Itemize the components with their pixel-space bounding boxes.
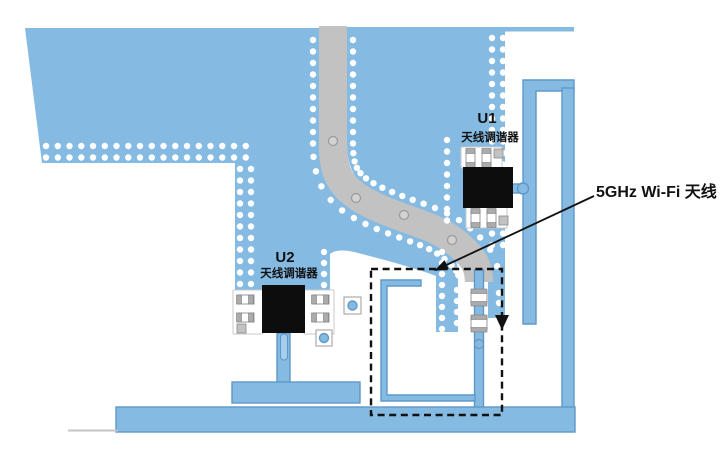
test-point bbox=[344, 297, 361, 314]
via bbox=[137, 154, 143, 160]
bottom-ground-bar bbox=[116, 407, 575, 432]
via bbox=[489, 81, 495, 87]
via bbox=[160, 154, 166, 160]
via bbox=[310, 106, 316, 112]
ground-pour-top-left bbox=[25, 28, 319, 163]
via bbox=[318, 183, 324, 189]
via bbox=[500, 81, 506, 87]
wifi-antenna-callout-label: 5GHz Wi-Fi 天线 bbox=[596, 182, 717, 201]
via bbox=[310, 83, 316, 89]
passive-component bbox=[487, 209, 496, 228]
via bbox=[321, 282, 327, 288]
via bbox=[439, 249, 445, 255]
via bbox=[489, 69, 495, 75]
via bbox=[248, 258, 254, 264]
u2-feed-inner-trace bbox=[281, 334, 288, 360]
via bbox=[407, 238, 413, 244]
via bbox=[184, 143, 190, 149]
via bbox=[310, 37, 316, 43]
via bbox=[196, 154, 202, 160]
via bbox=[489, 230, 495, 236]
via bbox=[350, 150, 356, 156]
via bbox=[489, 58, 495, 64]
pcb-layout-figure: U1 天线调谐器 U2 天线调谐器 5GHz Wi-Fi 天线 bbox=[0, 0, 720, 462]
via bbox=[439, 282, 445, 288]
via bbox=[207, 154, 213, 160]
via bbox=[231, 143, 237, 149]
via bbox=[444, 206, 450, 212]
feed-via bbox=[475, 340, 484, 349]
via bbox=[125, 143, 131, 149]
via bbox=[350, 48, 356, 54]
u2-function-label: 天线调谐器 bbox=[260, 266, 318, 280]
via bbox=[350, 140, 356, 146]
via bbox=[310, 94, 316, 100]
via bbox=[350, 60, 356, 66]
via bbox=[248, 235, 254, 241]
via bbox=[310, 60, 316, 66]
via bbox=[78, 154, 84, 160]
via bbox=[237, 223, 243, 229]
via bbox=[477, 234, 483, 240]
via bbox=[90, 154, 96, 160]
via bbox=[439, 326, 445, 332]
u1-stub-end bbox=[518, 183, 529, 194]
via bbox=[237, 177, 243, 183]
solder-pad bbox=[499, 216, 508, 225]
via bbox=[444, 137, 450, 143]
via bbox=[55, 143, 61, 149]
via bbox=[43, 154, 49, 160]
u1-antenna-tuner bbox=[461, 147, 513, 228]
passive-component bbox=[312, 295, 330, 304]
trace-via bbox=[352, 194, 361, 203]
via bbox=[237, 235, 243, 241]
via bbox=[172, 143, 178, 149]
via bbox=[237, 269, 243, 275]
via bbox=[432, 205, 438, 211]
via bbox=[500, 58, 506, 64]
via bbox=[426, 246, 432, 252]
via bbox=[90, 143, 96, 149]
via bbox=[385, 230, 391, 236]
via bbox=[350, 129, 356, 135]
via bbox=[357, 170, 363, 176]
via bbox=[160, 143, 166, 149]
via bbox=[310, 140, 316, 146]
pcb-layout-diagram: U1 天线调谐器 U2 天线调谐器 5GHz Wi-Fi 天线 bbox=[0, 0, 720, 462]
u2-antenna-bar bbox=[232, 382, 360, 403]
via bbox=[149, 143, 155, 149]
via bbox=[370, 180, 376, 186]
passive-component bbox=[466, 149, 475, 168]
via bbox=[350, 94, 356, 100]
via bbox=[313, 168, 319, 174]
via bbox=[455, 272, 461, 278]
via bbox=[410, 197, 416, 203]
via bbox=[363, 175, 369, 181]
passive-component bbox=[471, 315, 487, 332]
via bbox=[362, 221, 368, 227]
passive-component bbox=[471, 289, 487, 306]
via bbox=[321, 271, 327, 277]
via bbox=[137, 143, 143, 149]
via bbox=[248, 223, 254, 229]
via bbox=[248, 281, 254, 287]
via bbox=[454, 320, 460, 326]
trace-via bbox=[448, 236, 457, 245]
via bbox=[489, 35, 495, 41]
via bbox=[248, 166, 254, 172]
via bbox=[43, 143, 49, 149]
via bbox=[78, 143, 84, 149]
via bbox=[489, 92, 495, 98]
passive-component bbox=[237, 313, 255, 322]
via bbox=[350, 106, 356, 112]
via bbox=[500, 35, 506, 41]
via bbox=[328, 197, 334, 203]
via bbox=[439, 271, 445, 277]
via bbox=[444, 160, 450, 166]
ground-strip-top-right bbox=[505, 27, 574, 32]
u2-ref-label: U2 bbox=[275, 249, 294, 266]
passive-component bbox=[482, 149, 491, 168]
passive-component bbox=[471, 209, 480, 228]
via bbox=[420, 201, 426, 207]
via bbox=[66, 154, 72, 160]
via bbox=[321, 260, 327, 266]
via bbox=[66, 143, 72, 149]
via bbox=[500, 69, 506, 75]
via bbox=[351, 158, 357, 164]
u1-ic-body bbox=[463, 167, 513, 208]
via bbox=[489, 46, 495, 52]
via bbox=[444, 194, 450, 200]
via bbox=[456, 217, 462, 223]
via bbox=[196, 143, 202, 149]
via bbox=[243, 143, 249, 149]
via bbox=[172, 154, 178, 160]
via bbox=[417, 242, 423, 248]
via bbox=[248, 200, 254, 206]
trace-via bbox=[400, 211, 409, 220]
trace-via bbox=[329, 137, 338, 146]
via bbox=[350, 83, 356, 89]
via bbox=[248, 177, 254, 183]
via bbox=[113, 143, 119, 149]
via bbox=[500, 104, 506, 110]
via bbox=[439, 293, 445, 299]
via bbox=[243, 154, 249, 160]
passive-component bbox=[312, 313, 330, 322]
via bbox=[396, 234, 402, 240]
via bbox=[248, 189, 254, 195]
via bbox=[500, 242, 506, 248]
via bbox=[500, 230, 506, 236]
via bbox=[350, 117, 356, 123]
via bbox=[219, 154, 225, 160]
via bbox=[55, 154, 61, 160]
via bbox=[454, 309, 460, 315]
via bbox=[310, 48, 316, 54]
via bbox=[454, 287, 460, 293]
via bbox=[219, 143, 225, 149]
via bbox=[321, 249, 327, 255]
via bbox=[350, 37, 356, 43]
via bbox=[444, 171, 450, 177]
via bbox=[113, 154, 119, 160]
via bbox=[237, 281, 243, 287]
via bbox=[237, 212, 243, 218]
via bbox=[207, 143, 213, 149]
via bbox=[439, 304, 445, 310]
u2-antenna-tuner bbox=[233, 285, 361, 346]
via bbox=[310, 154, 316, 160]
solder-pad bbox=[494, 149, 503, 158]
feed-point-arrowhead bbox=[495, 315, 509, 330]
via bbox=[248, 212, 254, 218]
via bbox=[500, 46, 506, 52]
via bbox=[379, 185, 385, 191]
via bbox=[354, 165, 360, 171]
via bbox=[439, 315, 445, 321]
via bbox=[444, 148, 450, 154]
u2-ic-body bbox=[262, 285, 305, 333]
via bbox=[310, 117, 316, 123]
via bbox=[351, 215, 357, 221]
via bbox=[102, 143, 108, 149]
via bbox=[237, 200, 243, 206]
via bbox=[389, 189, 395, 195]
via bbox=[310, 71, 316, 77]
test-point bbox=[316, 330, 332, 346]
via bbox=[237, 189, 243, 195]
via bbox=[125, 154, 131, 160]
u1-ref-label: U1 bbox=[477, 110, 496, 127]
aux-antenna-right-arm bbox=[562, 88, 574, 410]
via bbox=[454, 298, 460, 304]
wifi-loop-element bbox=[381, 280, 475, 401]
via bbox=[231, 154, 237, 160]
via bbox=[184, 154, 190, 160]
passive-component bbox=[237, 295, 255, 304]
via bbox=[237, 258, 243, 264]
via bbox=[374, 226, 380, 232]
solder-pad bbox=[237, 324, 246, 333]
via bbox=[339, 207, 345, 213]
via bbox=[102, 154, 108, 160]
via bbox=[500, 115, 506, 121]
via bbox=[149, 154, 155, 160]
via bbox=[248, 269, 254, 275]
via bbox=[237, 166, 243, 172]
u1-function-label: 天线调谐器 bbox=[461, 130, 519, 144]
via bbox=[310, 129, 316, 135]
via bbox=[248, 246, 254, 252]
via bbox=[237, 246, 243, 252]
via bbox=[500, 92, 506, 98]
via bbox=[444, 183, 450, 189]
via bbox=[399, 193, 405, 199]
via bbox=[444, 217, 450, 223]
via bbox=[350, 71, 356, 77]
